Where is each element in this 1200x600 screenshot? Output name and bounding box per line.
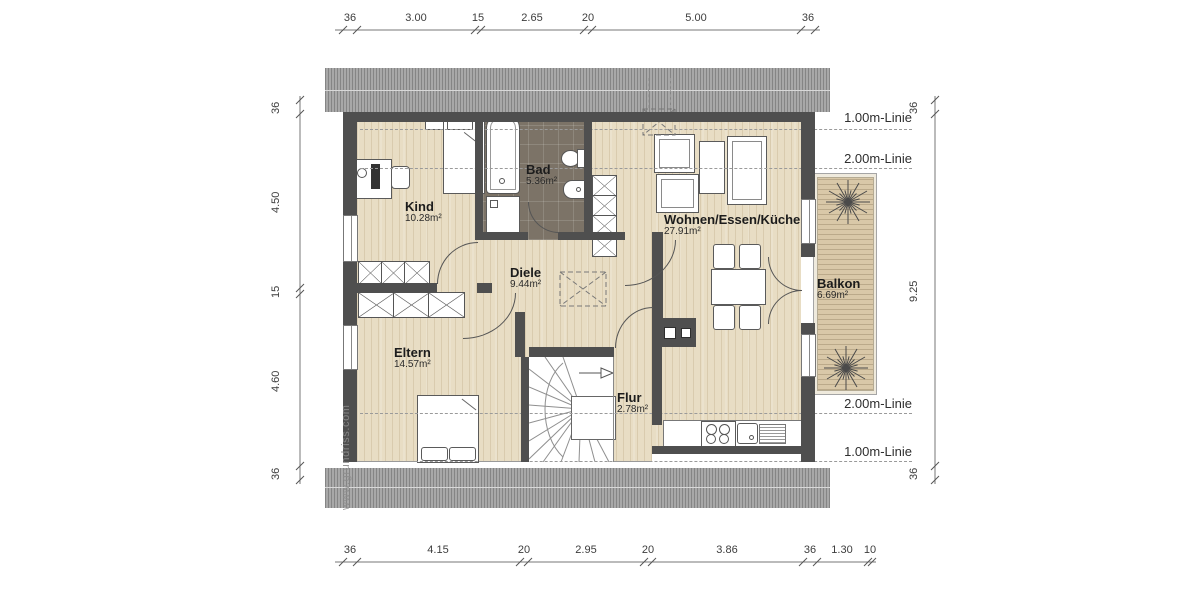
dim-bottom-0: 36 bbox=[325, 544, 375, 556]
dim-top-2: 15 bbox=[453, 12, 503, 24]
room-label-diele: Diele 9.44m² bbox=[510, 266, 541, 291]
watermark: www.grundriss.com bbox=[340, 382, 352, 510]
room-label-wohnen: Wohnen/Essen/Küche 27.91m² bbox=[664, 213, 800, 238]
dining-chair bbox=[713, 305, 735, 330]
room-label-kind: Kind 10.28m² bbox=[405, 200, 442, 225]
dim-left-3: 4.60 bbox=[268, 355, 284, 407]
chimney-opening bbox=[681, 328, 691, 338]
kitchen-sink bbox=[737, 423, 758, 444]
dim-left-0: 36 bbox=[268, 82, 284, 134]
height-line-label: 1.00m-Linie bbox=[790, 110, 912, 125]
dimension-line-left bbox=[290, 90, 310, 490]
roof-overhang-bottom-divider bbox=[325, 487, 830, 488]
plant-icon bbox=[822, 342, 870, 394]
dimension-line-right bbox=[925, 90, 945, 490]
wardrobe bbox=[358, 292, 395, 318]
dim-top-1: 3.00 bbox=[391, 12, 441, 24]
dim-right-1: 9.25 bbox=[906, 265, 922, 317]
room-name: Flur bbox=[617, 391, 648, 405]
room-label-balkon: Balkon 6.69m² bbox=[817, 277, 860, 302]
roof-overhang-bottom bbox=[325, 468, 830, 508]
room-area: 27.91m² bbox=[664, 227, 800, 238]
washbasin-faucet bbox=[576, 187, 581, 192]
sink-drain bbox=[749, 435, 754, 440]
wall-stair-north bbox=[529, 347, 614, 357]
dining-table bbox=[711, 269, 766, 305]
wall-bad-east bbox=[584, 122, 592, 240]
cooktop bbox=[701, 421, 736, 447]
dining-chair bbox=[739, 244, 761, 269]
roof-overhang-top-divider bbox=[325, 90, 830, 91]
dim-top-3: 2.65 bbox=[507, 12, 557, 24]
height-line-1m-south bbox=[360, 461, 912, 462]
room-label-eltern: Eltern 14.57m² bbox=[394, 346, 431, 371]
cooktop-burner bbox=[706, 434, 716, 444]
bathtub-drain bbox=[499, 178, 505, 184]
window-eltern-west bbox=[343, 325, 358, 370]
wall-kind-south bbox=[343, 283, 437, 293]
room-name: Kind bbox=[405, 200, 442, 214]
dim-left-4: 36 bbox=[268, 448, 284, 500]
room-area: 2.78m² bbox=[617, 405, 648, 416]
chimney-opening bbox=[664, 327, 676, 339]
cooktop-burner bbox=[719, 434, 729, 444]
sofa bbox=[727, 136, 767, 205]
wardrobe bbox=[428, 292, 465, 318]
dim-top-4: 20 bbox=[563, 12, 613, 24]
dim-bottom-1: 4.15 bbox=[413, 544, 463, 556]
wall-east-segment bbox=[801, 323, 815, 334]
dim-top-5: 5.00 bbox=[671, 12, 721, 24]
floor-plan: Kind 10.28m² Bad 5.36m² Wohnen/Essen/Küc… bbox=[0, 0, 1200, 600]
dim-bottom-4: 20 bbox=[623, 544, 673, 556]
wardrobe bbox=[358, 261, 383, 285]
armchair bbox=[656, 174, 699, 213]
room-name: Eltern bbox=[394, 346, 431, 360]
room-name: Balkon bbox=[817, 277, 860, 291]
cabinet bbox=[592, 175, 617, 197]
wardrobe bbox=[404, 261, 430, 285]
wall-kind-bad bbox=[475, 122, 483, 232]
dining-chair bbox=[739, 305, 761, 330]
balcony-window-south bbox=[801, 334, 816, 377]
height-line-label: 2.00m-Linie bbox=[790, 396, 912, 411]
skylight-guide bbox=[670, 78, 671, 108]
wall-stair-west bbox=[521, 357, 529, 462]
wardrobe bbox=[381, 261, 406, 285]
room-name: Wohnen/Essen/Küche bbox=[664, 213, 800, 227]
wall-east-segment bbox=[801, 242, 815, 257]
room-area: 9.44m² bbox=[510, 280, 541, 291]
wall-bad-south-segment bbox=[475, 232, 528, 240]
room-label-flur: Flur 2.78m² bbox=[617, 391, 648, 416]
dim-bottom-8: 10 bbox=[845, 544, 895, 556]
wall-north bbox=[343, 112, 815, 122]
washbasin bbox=[563, 180, 585, 199]
wall-flur-east bbox=[652, 347, 662, 425]
dim-bottom-3: 2.95 bbox=[561, 544, 611, 556]
wardrobe bbox=[393, 292, 430, 318]
room-label-bad: Bad 5.36m² bbox=[526, 163, 557, 188]
dim-right-0: 36 bbox=[906, 82, 922, 134]
dim-top-6: 36 bbox=[783, 12, 833, 24]
desk-chair bbox=[391, 166, 410, 189]
plant-icon bbox=[824, 176, 872, 228]
room-name: Bad bbox=[526, 163, 557, 177]
wall-eltern-stub bbox=[515, 312, 525, 357]
shower-drain bbox=[490, 200, 498, 208]
height-line-label: 1.00m-Linie bbox=[790, 444, 912, 459]
pillow bbox=[421, 447, 448, 461]
wall-kind-south-end bbox=[477, 283, 492, 293]
height-line-label: 2.00m-Linie bbox=[790, 151, 912, 166]
desk-lamp bbox=[357, 168, 367, 178]
dim-left-1: 4.50 bbox=[268, 176, 284, 228]
height-line-2m-north bbox=[360, 168, 912, 169]
pillow bbox=[449, 447, 476, 461]
dim-left-2: 15 bbox=[268, 266, 284, 318]
dim-right-2: 36 bbox=[906, 448, 922, 500]
stair-platform bbox=[571, 396, 616, 440]
dining-chair bbox=[713, 244, 735, 269]
balcony-window-north bbox=[801, 199, 816, 244]
cabinet bbox=[592, 195, 617, 217]
sink-drainer bbox=[759, 424, 786, 444]
dim-top-0: 36 bbox=[325, 12, 375, 24]
stair-flur-divider bbox=[613, 357, 614, 462]
room-name: Diele bbox=[510, 266, 541, 280]
dim-bottom-2: 20 bbox=[499, 544, 549, 556]
wall-wohnen-entry bbox=[592, 232, 625, 240]
room-area: 14.57m² bbox=[394, 360, 431, 371]
room-area: 10.28m² bbox=[405, 214, 442, 225]
room-area: 6.69m² bbox=[817, 291, 860, 302]
skylight-icon bbox=[559, 271, 607, 307]
skylight-guide bbox=[648, 78, 649, 108]
window-kind-west bbox=[343, 215, 358, 262]
room-area: 5.36m² bbox=[526, 177, 557, 188]
dim-bottom-5: 3.86 bbox=[702, 544, 752, 556]
height-line-1m-north bbox=[360, 129, 912, 130]
